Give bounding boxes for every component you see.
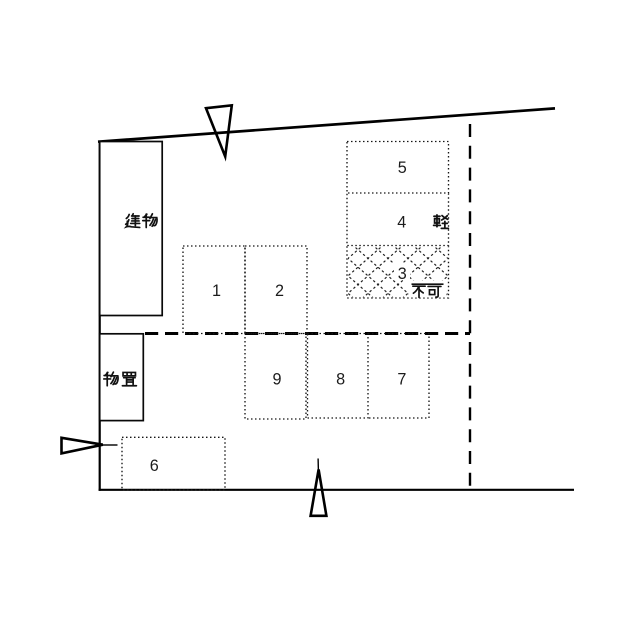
svg-text:6: 6 — [150, 457, 159, 475]
svg-text:5: 5 — [398, 159, 407, 177]
svg-text:2: 2 — [275, 282, 284, 300]
svg-text:8: 8 — [336, 371, 345, 389]
svg-text:7: 7 — [397, 371, 406, 389]
svg-text:9: 9 — [272, 371, 281, 389]
svg-text:3: 3 — [398, 265, 407, 283]
svg-text:4: 4 — [397, 213, 406, 231]
svg-text:1: 1 — [212, 282, 221, 300]
